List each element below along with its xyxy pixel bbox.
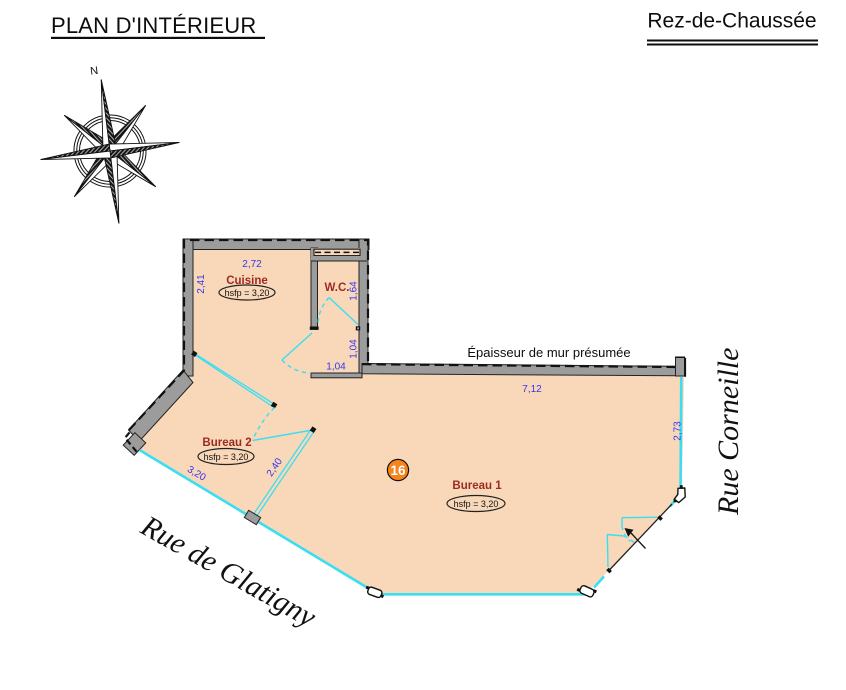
- svg-text:7,12: 7,12: [522, 384, 542, 395]
- svg-text:2,73: 2,73: [673, 421, 684, 441]
- svg-text:Épaisseur de mur présumée: Épaisseur de mur présumée: [467, 345, 630, 360]
- svg-text:PLAN D'INTÉRIEUR: PLAN D'INTÉRIEUR: [51, 13, 256, 38]
- svg-text:Bureau 1: Bureau 1: [452, 480, 502, 492]
- svg-text:Bureau 2: Bureau 2: [202, 437, 251, 449]
- svg-text:1,04: 1,04: [349, 339, 360, 359]
- svg-text:hsfp = 3,20: hsfp = 3,20: [225, 288, 270, 298]
- svg-text:2,72: 2,72: [242, 259, 262, 270]
- svg-text:1,04: 1,04: [326, 362, 346, 373]
- svg-text:hsfp = 3,20: hsfp = 3,20: [454, 499, 499, 509]
- svg-text:Rue Corneille: Rue Corneille: [712, 348, 745, 516]
- svg-text:Rez-de-Chaussée: Rez-de-Chaussée: [647, 10, 816, 33]
- svg-text:N: N: [89, 65, 98, 78]
- svg-text:W.C.: W.C.: [325, 282, 350, 294]
- svg-text:hsfp = 3,20: hsfp = 3,20: [204, 452, 249, 462]
- svg-text:2,41: 2,41: [196, 274, 207, 294]
- svg-text:1,64: 1,64: [349, 281, 360, 301]
- svg-text:16: 16: [390, 463, 406, 478]
